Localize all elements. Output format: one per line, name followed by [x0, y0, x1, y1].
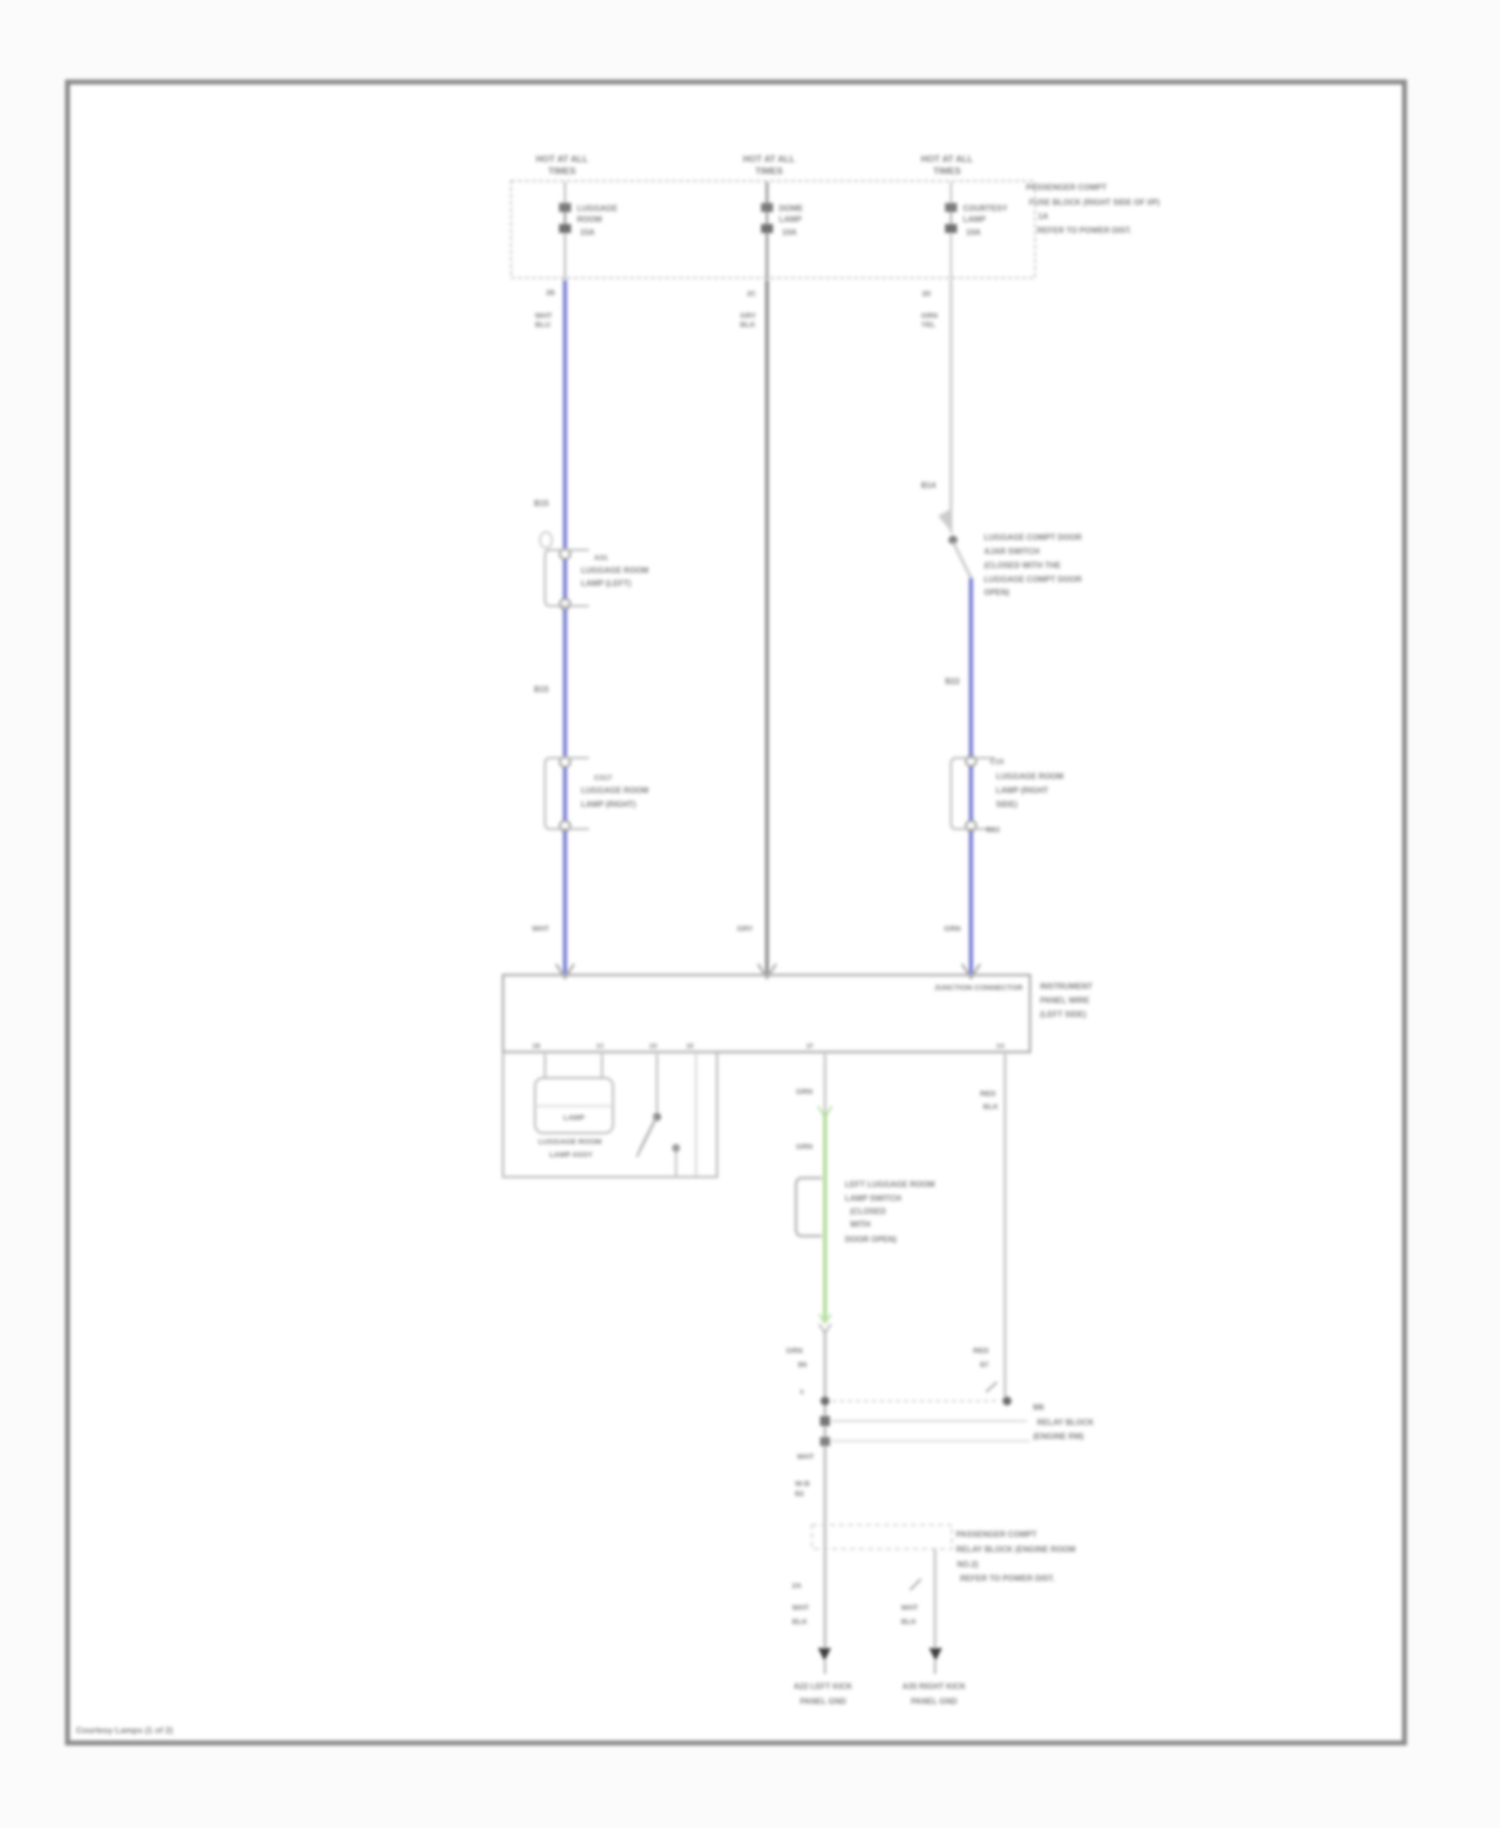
svg-text:B15: B15 — [534, 499, 549, 508]
svg-text:DOOR OPEN): DOOR OPEN) — [845, 1235, 897, 1244]
svg-text:1A: 1A — [1038, 212, 1048, 221]
svg-text:LAMP SWITCH: LAMP SWITCH — [845, 1194, 902, 1203]
svg-text:LUGGAGE COMPT DOOR: LUGGAGE COMPT DOOR — [984, 575, 1082, 584]
svg-text:2B: 2B — [546, 290, 555, 297]
svg-text:GRN: GRN — [786, 1346, 803, 1355]
svg-text:LUGGAGE ROOM: LUGGAGE ROOM — [581, 786, 649, 795]
svg-text:LAMP (RIGHT: LAMP (RIGHT — [996, 786, 1048, 795]
svg-text:(ENGINE RM): (ENGINE RM) — [1033, 1432, 1084, 1441]
svg-text:10A: 10A — [782, 228, 797, 237]
svg-text:GRN: GRN — [796, 1087, 813, 1096]
svg-text:BLK: BLK — [740, 320, 756, 329]
svg-text:2A: 2A — [792, 1581, 802, 1590]
svg-text:(CLOSED WITH THE: (CLOSED WITH THE — [984, 561, 1062, 570]
svg-text:WHT: WHT — [535, 311, 552, 320]
svg-text:1G: 1G — [996, 1043, 1005, 1050]
svg-text:1B: 1B — [532, 1043, 541, 1050]
svg-text:M6: M6 — [1033, 1403, 1045, 1412]
svg-text:WHT: WHT — [901, 1603, 918, 1612]
svg-text:BLK: BLK — [901, 1617, 917, 1626]
svg-text:NO.2): NO.2) — [957, 1560, 979, 1569]
svg-text:(LEFT SIDE): (LEFT SIDE) — [1040, 1010, 1087, 1019]
svg-text:Courtesy Lamps (1 of 2): Courtesy Lamps (1 of 2) — [76, 1725, 173, 1735]
svg-text:REFER TO POWER DIST.: REFER TO POWER DIST. — [1037, 226, 1132, 235]
svg-text:(CLOSED: (CLOSED — [850, 1207, 886, 1216]
svg-text:REFER TO POWER DIST.: REFER TO POWER DIST. — [960, 1574, 1055, 1583]
svg-text:B22: B22 — [986, 825, 1000, 834]
svg-text:INSTRUMENT: INSTRUMENT — [1040, 982, 1093, 991]
svg-text:GRY: GRY — [737, 924, 753, 933]
svg-text:B7: B7 — [980, 1362, 989, 1369]
svg-text:PASSENGER COMPT: PASSENGER COMPT — [1026, 183, 1107, 192]
svg-text:LAMP ASSY: LAMP ASSY — [549, 1150, 592, 1159]
svg-text:LAMP (LEFT): LAMP (LEFT) — [581, 579, 631, 588]
svg-text:B6: B6 — [798, 1362, 807, 1369]
svg-text:B14: B14 — [921, 481, 936, 490]
svg-text:BLK: BLK — [983, 1102, 999, 1111]
svg-text:LAMP: LAMP — [779, 215, 802, 224]
svg-text:JUNCTION CONNECTOR: JUNCTION CONNECTOR — [934, 983, 1023, 992]
svg-text:WHT: WHT — [532, 924, 549, 933]
svg-text:HOT AT ALL: HOT AT ALL — [536, 154, 589, 164]
svg-text:10A: 10A — [966, 228, 981, 237]
svg-text:WITH: WITH — [850, 1220, 871, 1229]
svg-text:1C: 1C — [596, 1043, 605, 1050]
svg-text:C317: C317 — [594, 773, 612, 782]
svg-text:GRN: GRN — [921, 311, 938, 320]
svg-text:15A: 15A — [580, 228, 595, 237]
svg-text:GRY: GRY — [740, 311, 756, 320]
svg-text:BLU: BLU — [535, 320, 550, 329]
svg-text:WHT: WHT — [797, 1452, 814, 1461]
svg-text:1D: 1D — [649, 1043, 658, 1050]
svg-text:2C: 2C — [747, 291, 756, 298]
svg-text:AJAR SWITCH: AJAR SWITCH — [984, 547, 1040, 556]
svg-text:OPEN): OPEN) — [984, 588, 1010, 597]
svg-text:LUGGAGE COMPT DOOR: LUGGAGE COMPT DOOR — [984, 533, 1082, 542]
svg-text:C15: C15 — [990, 757, 1004, 766]
svg-text:2D: 2D — [922, 291, 931, 298]
svg-text:HOT AT ALL: HOT AT ALL — [921, 154, 974, 164]
svg-text:PANEL GND: PANEL GND — [911, 1697, 958, 1706]
svg-text:LUGGAGE: LUGGAGE — [577, 204, 618, 213]
svg-text:COURTESY: COURTESY — [963, 204, 1008, 213]
svg-text:LUGGAGE ROOM: LUGGAGE ROOM — [581, 566, 649, 575]
svg-text:YEL: YEL — [921, 320, 936, 329]
svg-text:B15: B15 — [534, 685, 549, 694]
svg-text:SIDE): SIDE) — [996, 800, 1018, 809]
svg-text:DOME: DOME — [779, 204, 804, 213]
svg-text:HOT AT ALL: HOT AT ALL — [743, 154, 796, 164]
svg-text:A31: A31 — [594, 553, 608, 562]
svg-text:TIMES: TIMES — [933, 166, 961, 176]
svg-text:RELAY BLOCK (ENGINE ROOM: RELAY BLOCK (ENGINE ROOM — [956, 1545, 1076, 1554]
svg-text:LAMP: LAMP — [963, 215, 986, 224]
svg-text:FUSE BLOCK (RIGHT SIDE OF I/P): FUSE BLOCK (RIGHT SIDE OF I/P) — [1029, 198, 1160, 207]
svg-text:TIMES: TIMES — [548, 166, 576, 176]
svg-text:1F: 1F — [806, 1043, 814, 1050]
svg-text:LAMP (RIGHT): LAMP (RIGHT) — [581, 800, 636, 809]
svg-text:A35 RIGHT KICK: A35 RIGHT KICK — [902, 1682, 966, 1691]
svg-text:ROOM: ROOM — [577, 215, 602, 224]
svg-text:LUGGAGE ROOM: LUGGAGE ROOM — [538, 1137, 601, 1146]
svg-text:GRN: GRN — [944, 924, 961, 933]
svg-text:LAMP: LAMP — [563, 1113, 584, 1122]
svg-text:GRN: GRN — [796, 1142, 813, 1151]
svg-text:LUGGAGE ROOM: LUGGAGE ROOM — [996, 772, 1064, 781]
svg-text:PANEL WIRE: PANEL WIRE — [1040, 996, 1090, 1005]
svg-text:WHT: WHT — [792, 1603, 809, 1612]
svg-text:W-B: W-B — [795, 1479, 810, 1488]
svg-text:RED: RED — [980, 1089, 996, 1098]
svg-text:PASSENGER COMPT: PASSENGER COMPT — [956, 1530, 1037, 1539]
svg-text:1E: 1E — [686, 1043, 695, 1050]
svg-text:A22 LEFT KICK: A22 LEFT KICK — [794, 1682, 853, 1691]
svg-text:B22: B22 — [945, 677, 960, 686]
svg-text:PANEL GND: PANEL GND — [800, 1697, 847, 1706]
svg-text:B2: B2 — [795, 1491, 804, 1498]
svg-text:RED: RED — [973, 1346, 989, 1355]
svg-text:BLK: BLK — [792, 1617, 808, 1626]
svg-text:TIMES: TIMES — [755, 166, 783, 176]
svg-text:RELAY BLOCK: RELAY BLOCK — [1037, 1418, 1094, 1427]
svg-text:5: 5 — [800, 1389, 804, 1396]
svg-text:LEFT LUGGAGE ROOM: LEFT LUGGAGE ROOM — [845, 1180, 935, 1189]
